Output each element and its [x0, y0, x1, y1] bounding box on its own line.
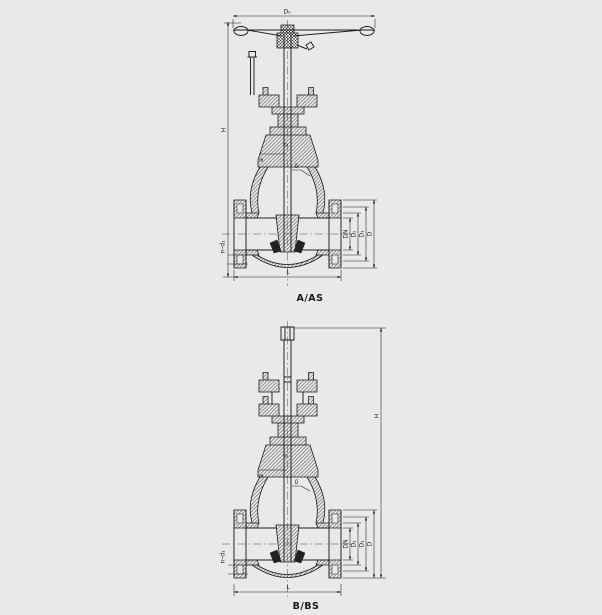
figure-b-label-nominal-bore: DN [343, 539, 350, 548]
figure-b-label-stem-diameter: d [283, 454, 290, 458]
figure-b-label-face-to-face: L [286, 584, 290, 591]
figure-a-label-nominal-bore: DN [343, 229, 350, 238]
figure-a-label-flange-od: D [367, 231, 374, 236]
figure-b-label-wall-thickness: δ [295, 479, 299, 486]
figure-b-label-flange-od: D [367, 541, 374, 546]
figure-a-label-wall-thickness: δ [295, 163, 299, 170]
figure-b-label-d2: D₂ [351, 540, 358, 548]
figure-b-label-bolt-circle: D₁ [359, 540, 366, 548]
drawing-canvas: D₀ H d a δ DN D₂ D₁ D n–d₁ L A/AS H d a … [0, 0, 602, 615]
figure-a-label-d2: D₂ [351, 230, 358, 238]
figure-a: D₀ H d a δ DN D₂ D₁ D n–d₁ L A/AS [220, 9, 378, 305]
valve-drawing-svg: D₀ H d a δ DN D₂ D₁ D n–d₁ L A/AS H d a … [0, 0, 602, 615]
figure-b: H d a δ DN D₂ D₁ D n–d₁ L B/BS [220, 321, 387, 612]
figure-a-caption: A/AS [296, 293, 323, 304]
figure-b-caption: B/BS [293, 601, 320, 612]
figure-a-label-face-to-face: L [286, 269, 290, 276]
figure-a-handwheel-rim-left [234, 27, 248, 36]
figure-b-label-height: H [374, 414, 381, 419]
figure-a-label-dim-a: a [258, 158, 265, 162]
figure-b-label-bolt-holes: n–d₁ [220, 550, 227, 564]
figure-a-label-bolt-circle: D₁ [359, 230, 366, 238]
figure-a-label-height: H [221, 128, 228, 133]
figure-a-label-stem-diameter: d [283, 143, 290, 147]
figure-b-label-dim-a: a [258, 474, 265, 478]
figure-a-label-bolt-holes: n–d₁ [220, 240, 227, 254]
figure-a-label-handwheel-od: D₀ [283, 9, 291, 16]
figure-a-handwheel-hub [277, 25, 298, 48]
figure-a-handwheel-rim-right [360, 27, 374, 36]
